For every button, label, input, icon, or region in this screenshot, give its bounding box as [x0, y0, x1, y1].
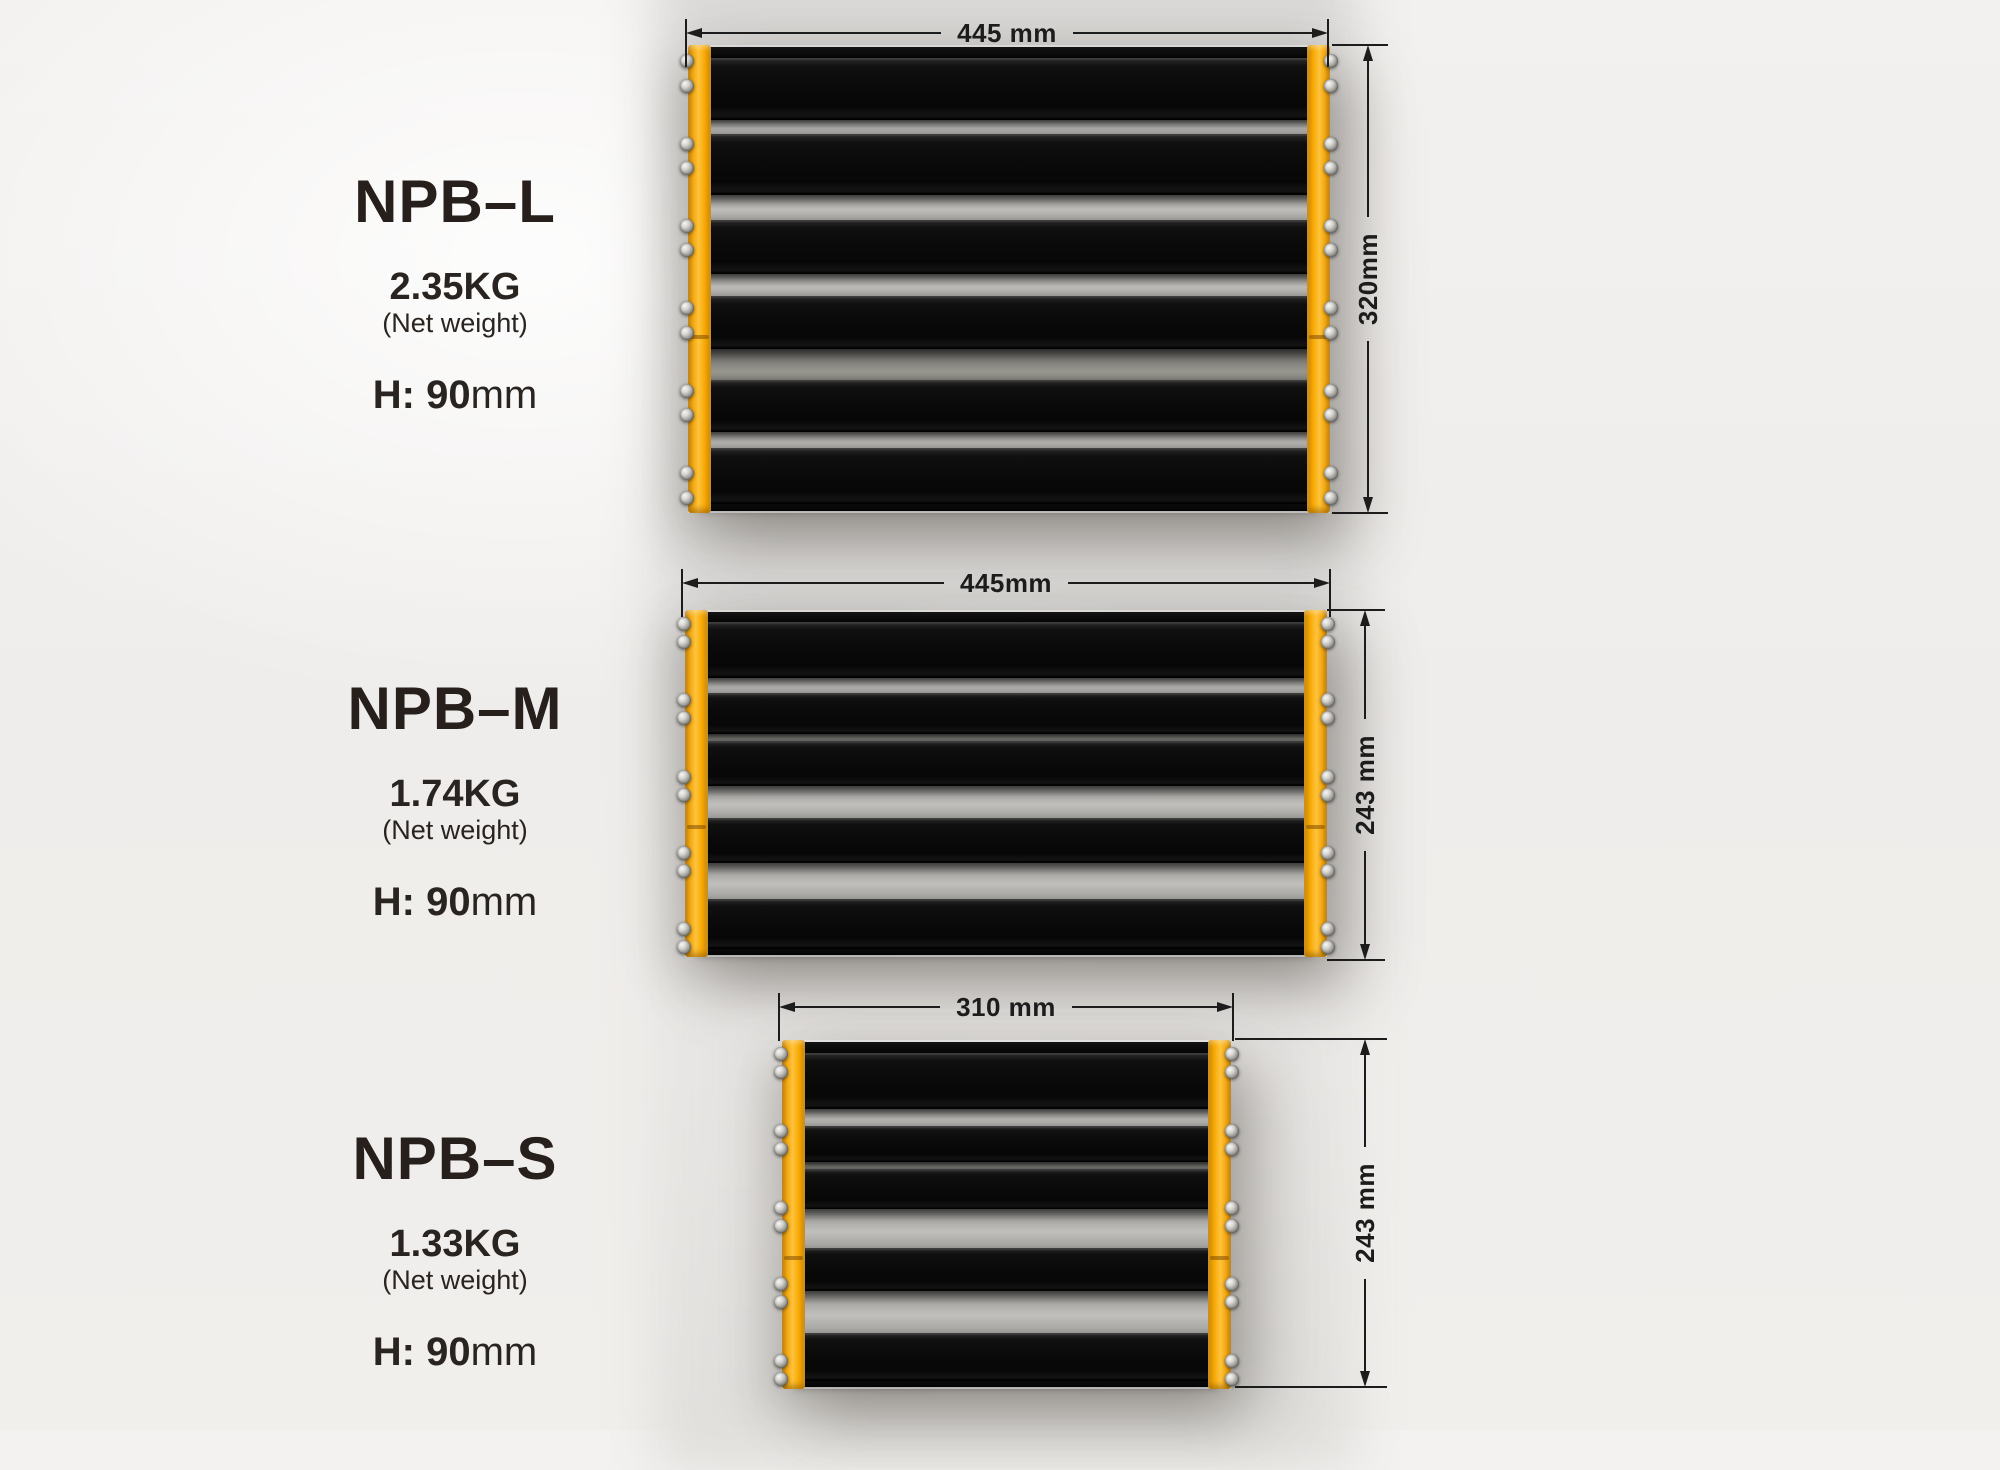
- side-rail-right: [1304, 610, 1327, 957]
- rail-joint: [1306, 825, 1325, 829]
- extension-line: [681, 569, 683, 617]
- screw-icon: [1321, 617, 1335, 631]
- slat-gap: [701, 195, 1317, 220]
- pedalboard-body: [685, 610, 1327, 957]
- screw-icon: [1225, 1354, 1239, 1368]
- pedalboard-body: [782, 1040, 1231, 1389]
- dimension-line: [1364, 1279, 1366, 1371]
- screw-icon: [774, 1047, 788, 1061]
- side-rail-left: [782, 1040, 805, 1389]
- screw-icon: [1321, 711, 1335, 725]
- side-rail-right: [1307, 45, 1330, 513]
- slat-deck: [701, 47, 1317, 511]
- dimension-label: 243 mm: [1352, 1163, 1378, 1263]
- screw-icon: [677, 864, 691, 878]
- screw-icon: [1321, 693, 1335, 707]
- board-top-edge: [698, 612, 1314, 622]
- screw-icon: [677, 693, 691, 707]
- product-name: NPB–S: [300, 1129, 610, 1189]
- dimension-label: 445 mm: [957, 20, 1057, 46]
- product-name: NPB–M: [300, 679, 610, 739]
- screw-icon: [677, 846, 691, 860]
- screw-icon: [774, 1354, 788, 1368]
- screw-icon: [774, 1219, 788, 1233]
- screw-icon: [680, 54, 694, 68]
- product-weight: 2.35KG: [300, 268, 610, 306]
- arrow-right-icon: [1314, 578, 1330, 588]
- extension-line: [778, 993, 780, 1041]
- extension-line: [1327, 19, 1329, 67]
- net-weight-note: (Net weight): [300, 310, 610, 337]
- slat: [698, 693, 1314, 734]
- pedalboard-npb-l: [688, 45, 1330, 513]
- screw-icon: [680, 326, 694, 340]
- screw-icon: [1321, 940, 1335, 954]
- slat: [698, 818, 1314, 863]
- screw-icon: [680, 466, 694, 480]
- screw-icon: [680, 243, 694, 257]
- screw-icon: [774, 1142, 788, 1156]
- arrow-down-icon: [1363, 497, 1373, 513]
- net-weight-note: (Net weight): [300, 817, 610, 844]
- screw-icon: [677, 940, 691, 954]
- screw-icon: [1321, 846, 1335, 860]
- dimension-line: [1068, 582, 1314, 584]
- slat: [701, 134, 1317, 195]
- board-bottom-edge: [698, 949, 1314, 955]
- screw-icon: [1324, 301, 1338, 315]
- slat-gap: [698, 863, 1314, 899]
- product-name: NPB–L: [300, 172, 610, 232]
- screw-icon: [680, 408, 694, 422]
- screw-icon: [677, 711, 691, 725]
- slat: [698, 741, 1314, 786]
- product-size-comparison-sheet: NPB–L 2.35KG (Net weight) H: 90mm: [0, 0, 2000, 1430]
- dimension-line: [1367, 341, 1369, 497]
- screw-icon: [1324, 491, 1338, 505]
- pedalboard-npb-m: [685, 610, 1327, 957]
- screw-icon: [680, 301, 694, 315]
- screw-icon: [1324, 384, 1338, 398]
- arrow-down-icon: [1360, 1371, 1370, 1387]
- dimension-label: 445mm: [960, 570, 1052, 596]
- arrow-right-icon: [1217, 1002, 1233, 1012]
- net-weight-note: (Net weight): [300, 1267, 610, 1294]
- slat: [795, 1248, 1218, 1292]
- slat: [795, 1169, 1218, 1209]
- dimension-label: 320mm: [1355, 233, 1381, 325]
- height-spec: H: 90mm: [300, 882, 610, 922]
- extension-line: [685, 19, 687, 67]
- screw-icon: [1324, 79, 1338, 93]
- screw-icon: [1225, 1047, 1239, 1061]
- arrow-up-icon: [1360, 1039, 1370, 1055]
- slat: [698, 899, 1314, 949]
- side-rail-left: [685, 610, 708, 957]
- board-bottom-edge: [795, 1381, 1218, 1387]
- screw-icon: [680, 491, 694, 505]
- extension-line: [1327, 959, 1385, 961]
- extension-line: [1235, 1038, 1387, 1040]
- arrow-down-icon: [1360, 944, 1370, 960]
- screw-icon: [774, 1124, 788, 1138]
- product-label-npb-s: NPB–S 1.33KG (Net weight) H: 90mm: [300, 1129, 610, 1372]
- dimension-line: [1364, 626, 1366, 719]
- screw-icon: [1324, 137, 1338, 151]
- dimension-label: 310 mm: [956, 994, 1056, 1020]
- screw-icon: [1321, 922, 1335, 936]
- rail-joint: [1210, 1256, 1229, 1260]
- pedalboard-npb-s: [782, 1040, 1231, 1389]
- slat: [795, 1333, 1218, 1381]
- screw-icon: [680, 161, 694, 175]
- dimension-label: 243 mm: [1352, 735, 1378, 835]
- dimension-line: [1073, 32, 1312, 34]
- slat: [795, 1126, 1218, 1162]
- screw-icon: [774, 1065, 788, 1079]
- screw-icon: [680, 384, 694, 398]
- dimension-line: [1072, 1006, 1217, 1008]
- dimension-line: [1367, 61, 1369, 217]
- screw-icon: [1225, 1142, 1239, 1156]
- screw-icon: [677, 770, 691, 784]
- screw-icon: [1324, 161, 1338, 175]
- rail-joint: [687, 825, 706, 829]
- screw-icon: [774, 1295, 788, 1309]
- height-unit: mm: [471, 880, 538, 924]
- slat: [795, 1053, 1218, 1108]
- product-weight: 1.74KG: [300, 775, 610, 813]
- board-top-edge: [701, 47, 1317, 58]
- height-unit: mm: [471, 373, 538, 417]
- screw-icon: [1324, 243, 1338, 257]
- screw-icon: [1324, 466, 1338, 480]
- height-value: H: 90: [373, 880, 471, 924]
- slat: [701, 296, 1317, 349]
- screw-icon: [1321, 864, 1335, 878]
- dimension-line: [1364, 851, 1366, 944]
- screw-icon: [1225, 1277, 1239, 1291]
- screw-icon: [677, 788, 691, 802]
- extension-line: [1235, 1386, 1387, 1388]
- screw-icon: [1321, 788, 1335, 802]
- slat-gap: [701, 349, 1317, 380]
- rail-joint: [784, 1256, 803, 1260]
- screw-icon: [1324, 219, 1338, 233]
- product-weight: 1.33KG: [300, 1225, 610, 1263]
- height-unit: mm: [471, 1330, 538, 1374]
- dimension-line: [795, 1006, 940, 1008]
- slat: [701, 380, 1317, 433]
- screw-icon: [774, 1372, 788, 1386]
- height-value: H: 90: [373, 1330, 471, 1374]
- screw-icon: [1225, 1065, 1239, 1079]
- slat: [701, 448, 1317, 504]
- extension-line: [1332, 44, 1388, 46]
- slat-gap: [698, 678, 1314, 693]
- height-spec: H: 90mm: [300, 1332, 610, 1372]
- screw-icon: [1225, 1219, 1239, 1233]
- slat-gap: [701, 432, 1317, 448]
- dimension-line: [702, 32, 941, 34]
- screw-icon: [680, 219, 694, 233]
- screw-icon: [1324, 326, 1338, 340]
- arrow-right-icon: [1312, 28, 1328, 38]
- slat-gap: [701, 274, 1317, 296]
- board-top-edge: [795, 1042, 1218, 1053]
- pedalboard-body: [688, 45, 1330, 513]
- screw-icon: [774, 1277, 788, 1291]
- screw-icon: [1321, 635, 1335, 649]
- product-label-npb-l: NPB–L 2.35KG (Net weight) H: 90mm: [300, 172, 610, 415]
- arrow-up-icon: [1363, 45, 1373, 61]
- slat-gap: [698, 786, 1314, 818]
- dimension-line: [1364, 1055, 1366, 1147]
- slat: [698, 622, 1314, 678]
- board-bottom-edge: [701, 504, 1317, 511]
- screw-icon: [774, 1201, 788, 1215]
- extension-line: [1327, 609, 1385, 611]
- slat-gap: [795, 1162, 1218, 1170]
- screw-icon: [1225, 1201, 1239, 1215]
- side-rail-right: [1208, 1040, 1231, 1389]
- screw-icon: [677, 635, 691, 649]
- screw-icon: [1321, 770, 1335, 784]
- slat: [701, 220, 1317, 275]
- slat-gap: [795, 1109, 1218, 1126]
- screw-icon: [680, 79, 694, 93]
- screw-icon: [680, 137, 694, 151]
- extension-line: [1232, 993, 1234, 1041]
- screw-icon: [1225, 1295, 1239, 1309]
- screw-icon: [1324, 408, 1338, 422]
- height-value: H: 90: [373, 373, 471, 417]
- side-rail-left: [688, 45, 711, 513]
- dimension-line: [698, 582, 944, 584]
- screw-icon: [1225, 1124, 1239, 1138]
- slat-gap: [701, 120, 1317, 134]
- slat: [701, 58, 1317, 119]
- screw-icon: [677, 617, 691, 631]
- arrow-up-icon: [1360, 610, 1370, 626]
- height-spec: H: 90mm: [300, 375, 610, 415]
- arrow-left-icon: [779, 1002, 795, 1012]
- slat-deck: [698, 612, 1314, 955]
- extension-line: [1332, 512, 1388, 514]
- product-label-npb-m: NPB–M 1.74KG (Net weight) H: 90mm: [300, 679, 610, 922]
- screw-icon: [1225, 1372, 1239, 1386]
- arrow-left-icon: [686, 28, 702, 38]
- slat-gap: [795, 1291, 1218, 1333]
- slat-gap: [795, 1209, 1218, 1247]
- screw-icon: [677, 922, 691, 936]
- arrow-left-icon: [682, 578, 698, 588]
- slat-deck: [795, 1042, 1218, 1387]
